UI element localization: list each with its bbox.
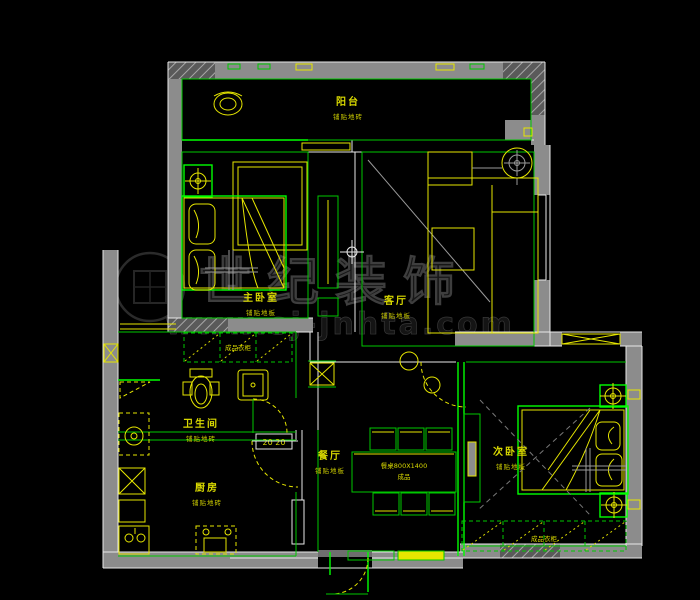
room-label-second-bedroom: 次卧室 (493, 445, 529, 458)
watermark-brand: 世纪装饰 (199, 253, 471, 313)
room-material-living-room: 铺贴地板 (381, 311, 411, 320)
wardrobe-label: 成品衣柜 (225, 343, 252, 352)
room-material-master-bedroom: 铺贴地板 (246, 308, 276, 317)
floor-plan-screenshot: 世纪装饰 www.sj-jnhta.com (0, 0, 700, 600)
wardrobe-label: 成品衣柜 (531, 534, 558, 543)
room-material-dining-room: 铺贴地板 (315, 466, 345, 475)
dining-table-label: 餐桌800X1400 (381, 461, 427, 470)
room-material-second-bedroom: 铺贴地板 (496, 462, 526, 471)
room-material-kitchen: 铺贴地砖 (192, 498, 222, 507)
room-label-dining-room: 餐厅 (317, 449, 342, 462)
room-label-master-bedroom: 主卧室 (243, 291, 279, 304)
room-material-balcony: 铺贴地砖 (333, 112, 363, 121)
room-label-balcony: 阳台 (336, 95, 360, 108)
dining-table-note: 成品 (398, 472, 411, 481)
floor-plan-canvas: 世纪装饰 www.sj-jnhta.com (0, 0, 700, 600)
dimension-text: 20 20 (263, 438, 286, 447)
room-material-bathroom: 铺贴地砖 (186, 434, 216, 443)
entry-sill (398, 551, 444, 560)
room-label-living-room: 客厅 (383, 294, 408, 307)
room-label-bathroom: 卫生间 (183, 417, 219, 430)
room-label-kitchen: 厨房 (195, 481, 219, 494)
